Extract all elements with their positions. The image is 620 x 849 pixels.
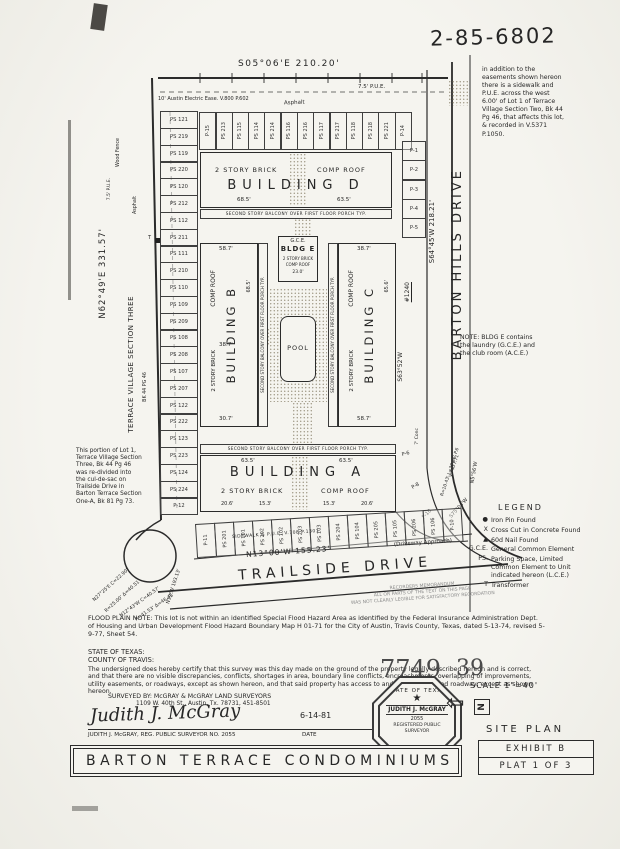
building-a-dim-b3: 15.3' [323,502,336,508]
north-arrow-icon: ⇦ [446,692,464,716]
building-c-dim-top: 38.7' [357,246,371,252]
parking-stall: PS 116 [281,112,298,150]
parking-stall: PS 224 [160,481,198,499]
parking-stall-label: PS 221 [384,122,390,139]
conc-walk-label: 7' Conc [416,428,421,445]
exhibit-label: EXHIBIT B [479,741,593,757]
building-e-gce: G.C.E. [279,239,317,245]
parking-stall-label: PS 111 [170,251,188,257]
parking-stall-label: PS 106 [430,518,437,536]
parking-stall: PS 110 [160,279,198,297]
parking-stall-label: PS 104 [354,522,361,540]
parking-stall-label: PS 109 [170,302,188,308]
parking-stall: PS 107 [160,363,198,381]
parking-stall: PS 213 [216,112,233,150]
parking-stall: P-15 [199,112,216,150]
parking-stall-label: P-12 [173,503,185,509]
building-a-material: 2 STORY BRICK [221,488,283,495]
parking-stall: PS 219 [160,128,198,146]
building-a-dim-b2: 15.3' [259,502,272,508]
parking-stall: PS 112 [160,212,198,230]
parking-stall: PS 210 [160,262,198,280]
barton-hills-drive-label: BARTON HILLS DRIVE [451,168,465,360]
parking-stall-label: PS 124 [170,470,188,476]
building-c-material: 2 STORY BRICK [349,350,355,392]
paving-corner-ne [448,80,468,106]
parking-stall-label: PS 216 [303,122,309,139]
building-b-dim-side: 68.5' [247,280,253,293]
parking-stall-label: PS 218 [368,122,374,139]
parking-stall-label: PS 201 [222,530,229,548]
west-boundary-bearing: N62°49'E 331.57' [99,228,108,319]
parking-stall-label: PS 114 [254,122,260,139]
building-e-name: BLDG E [279,246,317,254]
surveyed-by: SURVEYED BY: McGRAY & McGRAY LAND SURVEY… [108,694,271,701]
signature-date-label: DATE [302,732,317,738]
replat-note: This portion of Lot 1, Terrace Village S… [76,448,142,506]
building-e-material: 2 STORY BRICK [279,257,317,261]
parking-stall-label: PS 214 [270,122,276,139]
parking-stall-label: PS 213 [221,122,227,139]
parking-stall: P-2 [402,160,426,180]
building-b-dim-top: 58.7' [219,246,233,252]
title-banner-inner: BARTON TERRACE CONDOMINIUMS [73,748,459,774]
legend-symbol: ▲ [462,537,488,545]
parking-stall-label: PS 217 [335,122,341,139]
parking-stall: PS 108 [160,330,198,348]
east-boundary-bearing: S64°45'W 218.21' [429,200,437,263]
building-e: G.C.E. BLDG E 2 STORY BRICK COMP ROOF 23… [278,236,318,282]
building-a-balcony-note: SECOND STORY BALCONY OVER FIRST FLOOR PO… [228,447,369,452]
parking-stall-label: PS 211 [170,235,188,241]
parking-stall: P-5 [402,218,426,238]
parking-stall-label: PS 220 [170,167,188,173]
legend-symbol: PS. [462,556,488,580]
building-a-roof: COMP ROOF [321,488,370,495]
parking-stall-label: PS 219 [170,134,188,140]
parking-stall: P-1 [402,141,426,161]
legend-text: Parking Space, Limited Common Element to… [491,556,592,580]
legend-item: G.C.E. General Common Element [462,546,592,554]
parking-stall-label: PS 120 [170,184,188,190]
exhibit-box: EXHIBIT B PLAT 1 OF 3 [478,740,594,775]
cul-de-sac-arc [124,530,176,582]
building-d-balcony-strip: SECOND STORY BALCONY OVER FIRST FLOOR PO… [200,209,392,219]
parking-stall-label: PS 123 [170,436,188,442]
legend-text: 60d Nail Found [491,537,592,545]
parking-stall-label: PS 206 [411,519,418,537]
parking-stall-label: PS 204 [335,523,342,541]
building-a-name: BUILDING A [201,466,395,480]
building-b-balcony-strip: SECOND STORY BALCONY OVER FIRST FLOOR PO… [258,243,268,427]
title-banner: BARTON TERRACE CONDOMINIUMS [70,745,462,777]
electric-easement-label: 10' Austin Electric Ease. V.800 P.602 [158,97,249,103]
parking-stall: PS 122 [160,397,198,415]
parking-stall-label: P-5 [410,225,418,231]
parking-stall: PS 120 [160,178,198,196]
parking-stall-label: PS 122 [170,403,188,409]
legend: LEGEND ● Iron Pin Found X Cross Cut in C… [462,504,592,592]
parking-stall: PS 222 [160,414,198,432]
building-b-roof: COMP ROOF [211,270,218,307]
pool: POOL [280,316,316,382]
legend-symbol: X [462,527,488,535]
building-a-dim-left: 63.5' [241,458,255,464]
signature-date: 6-14-81 [300,712,331,721]
parking-column-west: PS 121 PS 219 PS 119 PS 220 PS 120 PS 21… [160,112,198,515]
parking-stall: PS 216 [297,112,314,150]
parking-stall-label: PS 223 [170,453,188,459]
parking-stall: PS 211 [160,229,198,247]
parking-stall-label: PS 118 [351,122,357,139]
terrace-village-label: TERRACE VILLAGE SECTION THREE [128,296,136,433]
parking-stall-label: P-14 [400,125,406,136]
parking-stall-label: PS 224 [170,487,188,493]
parking-stall: PS 123 [160,430,198,448]
north-arrow-box: N [474,699,490,715]
building-d: 2 STORY BRICK COMP ROOF BUILDING D 68.5'… [200,152,392,208]
north-letter: N [477,703,487,711]
parking-stall: P-12 [160,498,198,516]
legend-text: Cross Cut in Concrete Found [491,527,592,535]
seal-star-icon: ★ [413,694,422,704]
building-c-balcony-strip: SECOND STORY BALCONY OVER FIRST FLOOR PO… [328,243,338,427]
parking-stall-label: PS 110 [170,285,188,291]
parking-row-north: P-15 PS 213 PS 115 PS 114 PS 214 PS 116 … [200,112,412,150]
parking-stall-label: PS 121 [170,117,188,123]
asphalt-label-west: Asphalt [133,196,138,214]
legend-symbol: ● [462,517,488,525]
building-e-dim: 23.0' [279,271,317,276]
asphalt-label-top: Asphalt [284,100,305,107]
parking-stall-label: PS 207 [170,386,188,392]
seal-bottom-text: REGISTERED PUBLIC SURVEYOR [391,723,443,734]
parking-stall: PS 223 [160,447,198,465]
parking-stall: PS 115 [232,112,249,150]
flood-plain-note: FLOOD PLAIN NOTE: This lot is not within… [88,614,546,639]
legend-item: X Cross Cut in Concrete Found [462,527,592,535]
building-b-dim-bottom: 30.7' [219,416,233,422]
parking-stall-label: PS 105 [392,520,399,538]
building-b-balcony-note: SECOND STORY BALCONY OVER FIRST FLOOR PO… [261,277,265,393]
project-title: BARTON TERRACE CONDOMINIUMS [74,753,454,769]
scanned-survey-page: 2-85-6802 S05°06'E 210.20' 7.5' P.U.E. 1… [0,0,620,849]
parking-stall: P-3 [402,180,426,200]
site-plan-label: SITE PLAN [486,724,564,735]
building-c-roof: COMP ROOF [349,270,356,307]
parking-stall-label: PS 115 [237,122,243,139]
building-d-dim-left: 68.5' [237,197,251,203]
parking-stall-label: PS 116 [286,122,292,139]
building-b-material: 2 STORY BRICK [211,350,217,392]
building-c-name: BUILDING C [363,286,376,384]
legend-text: Iron Pin Found [491,517,592,525]
legend-text: General Common Element [491,546,592,554]
parking-column-east: P-1 P-2 P-3 P-4 P-5 [402,142,426,238]
parking-stall-label: PS 117 [319,122,325,139]
parking-stall: PS 114 [248,112,265,150]
parking-stall: PS 221 [378,112,395,150]
parking-stall-label: PS 119 [170,151,188,157]
parking-stall: PS 207 [160,380,198,398]
legend-title: LEGEND [498,504,592,513]
transformer-label: T [148,236,151,242]
legend-item: ▲ 60d Nail Found [462,537,592,545]
parking-stall-label: PS 208 [170,352,188,358]
seal-name: JUDITH J. McGRAY [386,705,448,715]
parking-stall: PS 217 [330,112,347,150]
scale-label: SCALE 1"=40' [470,682,538,691]
plat-label: PLAT 1 OF 3 [479,757,593,774]
pool-label: POOL [287,345,309,352]
pue-label-west: 7.5' P.U.E. [108,178,113,200]
parking-stall-label: P-1 [410,148,418,154]
building-c: 38.7' COMP ROOF BUILDING C 2 STORY BRICK… [338,243,396,427]
parking-stall: PS 121 [160,111,198,129]
street-address: #1240 [405,282,412,302]
building-b-name: BUILDING B [225,286,238,383]
parking-stall-label: P-2 [410,167,418,173]
parking-stall: PS 220 [160,162,198,180]
parking-stall-label: PS 209 [170,319,188,325]
legend-symbol: G.C.E. [462,546,488,554]
parking-stall: PS 111 [160,246,198,264]
building-d-dim-right: 63.5' [337,197,351,203]
legend-item: PS. Parking Space, Limited Common Elemen… [462,556,592,580]
parking-stall-label: PS 222 [170,419,188,425]
building-d-material: 2 STORY BRICK [215,167,277,174]
parking-stall-label: PS 210 [170,268,188,274]
wood-fence-label: Wood Fence [116,138,121,167]
building-a-balcony-strip: SECOND STORY BALCONY OVER FIRST FLOOR PO… [200,444,396,454]
legend-items: ● Iron Pin Found X Cross Cut in Concrete… [462,517,592,590]
easement-note: in addition to the easements shown hereo… [482,66,566,139]
parking-stall: PS 209 [160,313,198,331]
parking-stall: PS 214 [264,112,281,150]
building-b-dim-mid: 38.7' [219,342,233,348]
parking-stall-label: P-10 [449,520,456,531]
building-d-roof: COMP ROOF [317,167,366,174]
parking-stall: PS 109 [160,296,198,314]
building-e-roof: COMP ROOF [279,263,317,267]
building-d-name: BUILDING D [201,179,391,193]
parking-stall: PS 117 [313,112,330,150]
document-number: 2-85-6802 [430,24,557,50]
building-c-balcony-note: SECOND STORY BALCONY OVER FIRST FLOOR PO… [331,277,335,393]
parking-stall-label: PS 212 [170,201,188,207]
walk-pool-to-a [292,402,312,443]
parking-stall-label: PS 205 [373,521,380,539]
cert-county: COUNTY OF TRAVIS: [88,657,154,664]
terrace-record-ref: BK 44 PG 46 [143,372,148,402]
parking-stall-label: PS 107 [170,369,188,375]
pue-label-top: 7.5' P.U.E. [358,84,385,90]
parking-stall-label: P-4 [410,206,418,212]
parking-stall-label: P-15 [205,125,211,136]
building-a-dim-right: 63.5' [339,458,353,464]
seal-number: 2055 [411,716,424,722]
building-b: 58.7' COMP ROOF BUILDING B 2 STORY BRICK… [200,243,258,427]
parking-stall-label: P-3 [410,187,418,193]
building-c-dim-side: 65.6' [385,280,391,293]
building-a: 63.5' 63.5' BUILDING A 2 STORY BRICK COM… [200,455,396,512]
parking-stall-label: P-11 [203,535,210,546]
bldg-e-note: NOTE: BLDG E contains the laundry (G.C.E… [460,334,540,358]
parking-stall-label: PS 108 [170,335,188,341]
building-a-dim-b4: 20.6' [361,502,374,508]
parking-stall: PS 212 [160,195,198,213]
parking-stall: PS 208 [160,346,198,364]
legend-item: ● Iron Pin Found [462,517,592,525]
parking-stall-label: PS 112 [170,218,188,224]
parking-stall: PS 124 [160,464,198,482]
signature-rule [88,729,376,730]
parking-stall: P-4 [402,199,426,219]
parking-stall: PS 218 [362,112,379,150]
curve-se-bearing: S63°52'W [398,352,405,382]
parking-stall: PS 118 [346,112,363,150]
signature-caption: JUDITH J. McGRAY, REG. PUBLIC SURVEYOR N… [88,732,236,738]
north-boundary-bearing: S05°06'E 210.20' [238,60,340,70]
building-d-balcony-note: SECOND STORY BALCONY OVER FIRST FLOOR PO… [226,212,367,217]
parking-stall: PS 119 [160,145,198,163]
building-c-dim-bottom: 58.7' [357,416,371,422]
building-a-dim-b1: 20.6' [221,502,234,508]
